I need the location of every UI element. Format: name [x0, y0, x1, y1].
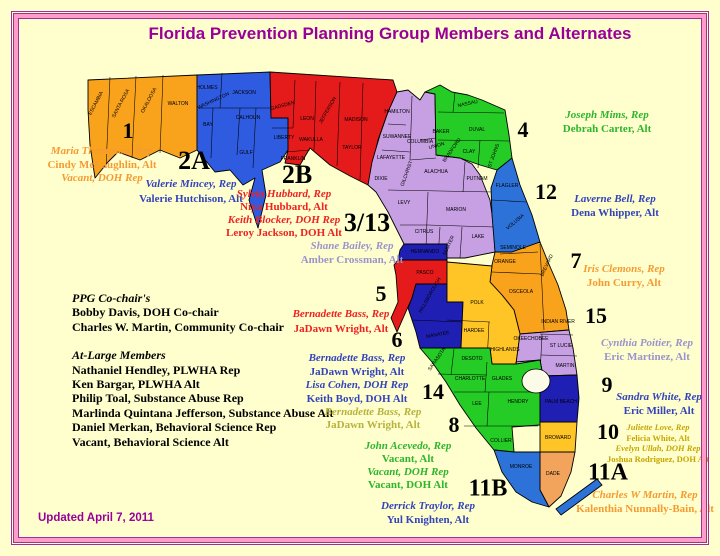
region-11a-members: Charles W Martin, RepKalenthia Nunnally-…: [576, 488, 714, 516]
member-name: Juliette Love, Rep: [607, 422, 709, 433]
county-label-martin: MARTIN: [555, 363, 574, 369]
spacer: [72, 334, 333, 348]
county-label-madison: MADISON: [344, 117, 368, 123]
region-9-members: Sandra White, RepEric Miller, Alt: [616, 390, 702, 418]
slide: ESCAMBIASANTA ROSAOKALOOSAWALTONHOLMESWA…: [0, 0, 720, 556]
member-name: Iris Clemons, Rep: [583, 262, 665, 276]
region-3-13-members: Shane Bailey, RepAmber Crossman, Alt: [301, 240, 404, 267]
member-name: Kalenthia Nunnally-Bain, Alt: [576, 502, 714, 516]
member-name: John Acevedo, Rep: [365, 440, 452, 453]
county-label-desoto: DESOTO: [461, 356, 482, 362]
member-name: Vacant, DOH Alt: [365, 479, 452, 492]
region-8-number: 8: [449, 412, 460, 438]
county-label-baker: BAKER: [433, 129, 450, 135]
county-label-dade: DADE: [546, 471, 561, 477]
region-2a-number: 2A: [178, 146, 210, 176]
region-7-members: Iris Clemons, RepJohn Curry, Alt: [583, 262, 665, 290]
county-label-calhoun: CALHOUN: [236, 115, 261, 121]
county-label-monroe: MONROE: [510, 464, 533, 470]
county-label-glades: GLADES: [492, 376, 513, 382]
updated-date: Updated April 7, 2011: [38, 512, 154, 524]
panel-member-name: Marlinda Quintana Jefferson, Substance A…: [72, 406, 333, 420]
member-name: Derrick Traylor, Rep: [381, 499, 475, 513]
region-15-number: 15: [585, 303, 607, 329]
county-label-st-lucie: ST LUCIE: [550, 343, 573, 349]
region-1-number: 1: [123, 118, 134, 144]
region-5-number: 5: [376, 281, 387, 307]
region-6-members: Bernadette Bass, RepJaDawn Wright, AltLi…: [306, 352, 409, 406]
region-7-number: 7: [571, 248, 582, 274]
member-name: Vacant, DOH Rep: [365, 466, 452, 479]
region-14-members: Bernadette Bass, RepJaDawn Wright, Alt: [325, 406, 422, 432]
member-name: Keith Boyd, DOH Alt: [306, 393, 409, 407]
county-label-okeechobee: OKEECHOBEE: [513, 336, 549, 342]
county-label-hendry: HENDRY: [507, 399, 529, 405]
county-label-osceola: OSCEOLA: [509, 289, 534, 295]
county-label-wakulla: WAKULLA: [299, 137, 323, 143]
county-label-leon: LEON: [300, 116, 314, 122]
member-name: Bernadette Bass, Rep: [306, 352, 409, 366]
county-label-collier: COLLIER: [490, 438, 512, 444]
county-label-levy: LEVY: [398, 200, 411, 206]
member-name: Niya Hubbard, Alt: [226, 201, 342, 214]
region-12-members: Laverne Bell, RepDena Whipper, Alt: [571, 192, 659, 220]
member-name: Sylvia Hubbard, Rep: [226, 188, 342, 201]
region-8-members: John Acevedo, RepVacant, AltVacant, DOH …: [365, 440, 452, 492]
member-name: Cynthia Poitier, Rep: [601, 336, 693, 350]
county-label-palm-beach: PALM BEACH: [545, 399, 577, 405]
county-label-indian-river: INDIAN RIVER: [541, 319, 575, 325]
county-label-walton: WALTON: [168, 101, 189, 107]
panel-member-name: Vacant, Behavioral Science Alt: [72, 435, 333, 449]
county-label-alachua: ALACHUA: [424, 169, 448, 175]
county-label-lee: LEE: [472, 401, 482, 407]
member-name: Laverne Bell, Rep: [571, 192, 659, 206]
county-label-hernando: HERNANDO: [411, 249, 440, 255]
member-name: Keith Blocker, DOH Rep: [226, 214, 342, 227]
county-label-orange: ORANGE: [494, 259, 516, 265]
member-name: Lisa Cohen, DOH Rep: [306, 379, 409, 393]
region-12-area: [491, 158, 540, 252]
county-label-putnam: PUTNAM: [466, 176, 487, 182]
member-name: Yul Knighten, Alt: [381, 513, 475, 527]
county-label-duval: DUVAL: [469, 127, 486, 133]
member-name: Evelyn Ullah, DOH Rep: [607, 443, 709, 454]
member-name: Dena Whipper, Alt: [571, 206, 659, 220]
county-label-lake: LAKE: [472, 234, 485, 240]
region-11a-number: 11A: [588, 460, 628, 487]
member-name: JaDawn Wright, Alt: [325, 419, 422, 432]
region-11b-members: Derrick Traylor, RepYul Knighten, Alt: [381, 499, 475, 527]
region-10-members: Juliette Love, RepFelicia White, AltEvel…: [607, 422, 709, 465]
member-name: Eric Miller, Alt: [616, 404, 702, 418]
county-label-highlands: HIGHLANDS: [490, 347, 520, 353]
lake-okeechobee: [522, 369, 550, 393]
county-label-pasco: PASCO: [416, 270, 433, 276]
region-4-number: 4: [518, 117, 529, 143]
member-name: John Curry, Alt: [583, 276, 665, 290]
page-title: Florida Prevention Planning Group Member…: [60, 24, 720, 44]
panel-member-name: Nathaniel Hendley, PLWHA Rep: [72, 363, 333, 377]
member-name: JaDawn Wright, Alt: [293, 322, 390, 337]
member-name: Felicia White, Alt: [607, 433, 709, 444]
county-label-dixie: DIXIE: [374, 176, 388, 182]
panel-heading: At-Large Members: [72, 348, 333, 362]
member-name: Eric Martinez, Alt: [601, 350, 693, 364]
county-label-holmes: HOLMES: [196, 85, 218, 91]
panel-member-name: Philip Toal, Substance Abuse Rep: [72, 391, 333, 405]
region-14-number: 14: [422, 379, 444, 405]
panel-heading: PPG Co-chair's: [72, 291, 333, 305]
member-name: JaDawn Wright, Alt: [306, 366, 409, 380]
county-label-seminole: SEMINOLE: [500, 245, 527, 251]
county-label-liberty: LIBERTY: [274, 135, 295, 141]
member-name: Bernadette Bass, Rep: [293, 307, 390, 322]
county-label-citrus: CITRUS: [415, 229, 434, 235]
region-9-number: 9: [602, 372, 613, 398]
member-name: Charles W Martin, Rep: [576, 488, 714, 502]
member-name: Cindy McLaughlin, Alt: [47, 159, 156, 173]
county-label-charlotte: CHARLOTTE: [455, 376, 486, 382]
member-name: Bernadette Bass, Rep: [325, 406, 422, 419]
county-label-marion: MARION: [446, 207, 466, 213]
panel-member-name: Ken Bargar, PLWHA Alt: [72, 377, 333, 391]
county-label-polk: POLK: [470, 300, 484, 306]
county-label-broward: BROWARD: [545, 435, 571, 441]
member-name: Sandra White, Rep: [616, 390, 702, 404]
county-label-hamilton: HAMILTON: [384, 109, 410, 115]
member-name: Leroy Jackson, DOH Alt: [226, 227, 342, 240]
member-name: Vacant, Alt: [365, 453, 452, 466]
member-name: Amber Crossman, Alt: [301, 254, 404, 268]
county-label-jackson: JACKSON: [232, 90, 256, 96]
county-label-bay: BAY: [203, 122, 213, 128]
region-5-members: Bernadette Bass, RepJaDawn Wright, Alt: [293, 307, 390, 336]
county-label-gulf: GULF: [239, 150, 252, 156]
member-name: Debrah Carter, Alt: [563, 122, 652, 136]
member-name: Shane Bailey, Rep: [301, 240, 404, 254]
member-name: Maria Thompson, Rep: [47, 145, 156, 159]
region-6-number: 6: [392, 327, 403, 353]
county-label-flagler: FLAGLER: [496, 183, 519, 189]
panel-member-name: Daniel Merkan, Behavioral Science Rep: [72, 420, 333, 434]
region-15-members: Cynthia Poitier, RepEric Martinez, Alt: [601, 336, 693, 364]
region-3-13-number: 3/13: [344, 208, 390, 238]
county-label-taylor: TAYLOR: [342, 145, 362, 151]
county-label-lafayette: LAFAYETTE: [377, 155, 406, 161]
region-12-number: 12: [535, 179, 557, 205]
member-name: Joseph Mims, Rep: [563, 108, 652, 122]
region-2b-members: Sylvia Hubbard, RepNiya Hubbard, AltKeit…: [226, 188, 342, 240]
region-2b-number: 2B: [282, 160, 312, 190]
county-label-hardee: HARDEE: [464, 328, 486, 334]
region-4-members: Joseph Mims, RepDebrah Carter, Alt: [563, 108, 652, 136]
county-label-clay: CLAY: [463, 149, 476, 155]
